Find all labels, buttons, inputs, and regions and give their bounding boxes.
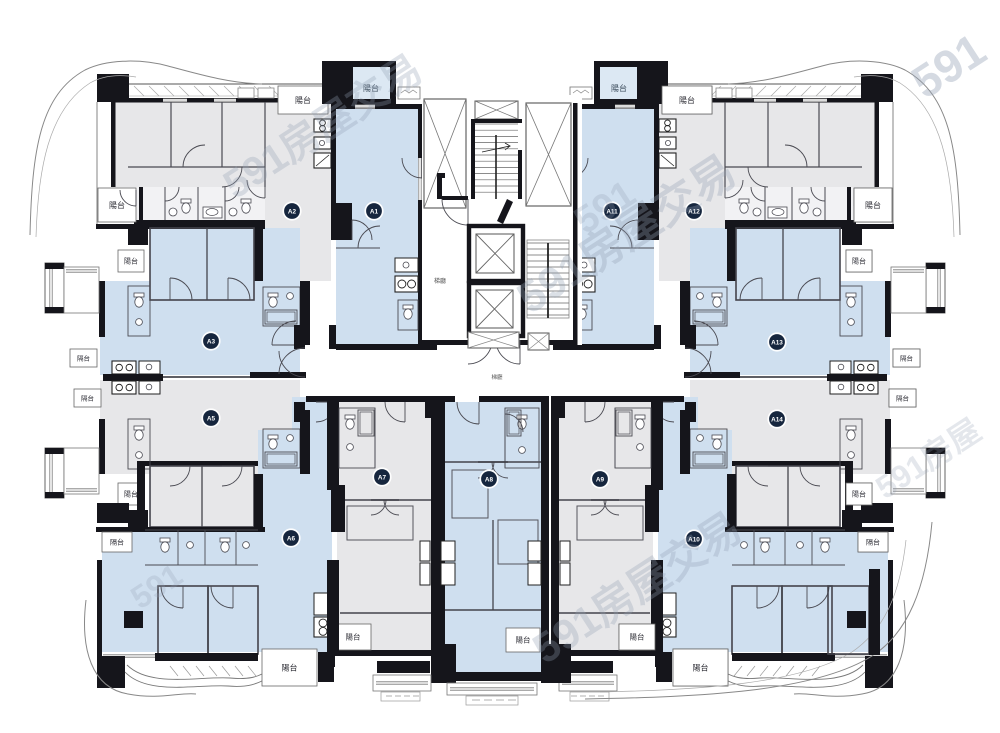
svg-text:陽台: 陽台 — [693, 662, 709, 672]
svg-text:陽台: 陽台 — [109, 200, 125, 210]
svg-text:隔台: 隔台 — [110, 538, 124, 547]
svg-text:陽台: 陽台 — [679, 95, 695, 105]
svg-text:陽台: 陽台 — [865, 200, 881, 210]
svg-text:陽台: 陽台 — [282, 662, 298, 672]
svg-text:A1: A1 — [370, 208, 379, 215]
svg-text:梯廳: 梯廳 — [491, 373, 503, 381]
svg-text:陽台: 陽台 — [852, 257, 866, 266]
svg-text:梯廳: 梯廳 — [434, 277, 446, 285]
svg-text:隔台: 隔台 — [866, 538, 880, 547]
svg-text:A14: A14 — [771, 416, 783, 423]
svg-text:隔台: 隔台 — [77, 353, 90, 362]
svg-text:A2: A2 — [288, 208, 297, 215]
svg-text:A8: A8 — [485, 476, 494, 483]
svg-text:陽台: 陽台 — [346, 632, 361, 642]
svg-text:A5: A5 — [207, 415, 216, 422]
svg-text:A7: A7 — [378, 474, 387, 481]
svg-text:隔台: 隔台 — [81, 393, 94, 402]
svg-text:隔台: 隔台 — [896, 393, 909, 402]
svg-text:陽台: 陽台 — [124, 490, 138, 499]
svg-text:A13: A13 — [771, 339, 783, 346]
svg-text:陽台: 陽台 — [124, 257, 138, 266]
svg-text:A9: A9 — [596, 476, 605, 483]
svg-text:陽台: 陽台 — [295, 95, 311, 105]
svg-text:A6: A6 — [287, 535, 296, 542]
svg-text:陽台: 陽台 — [852, 490, 866, 499]
svg-text:A3: A3 — [207, 338, 216, 345]
svg-text:陽台: 陽台 — [630, 632, 645, 642]
svg-text:陽台: 陽台 — [611, 83, 627, 93]
svg-text:隔台: 隔台 — [900, 353, 913, 362]
